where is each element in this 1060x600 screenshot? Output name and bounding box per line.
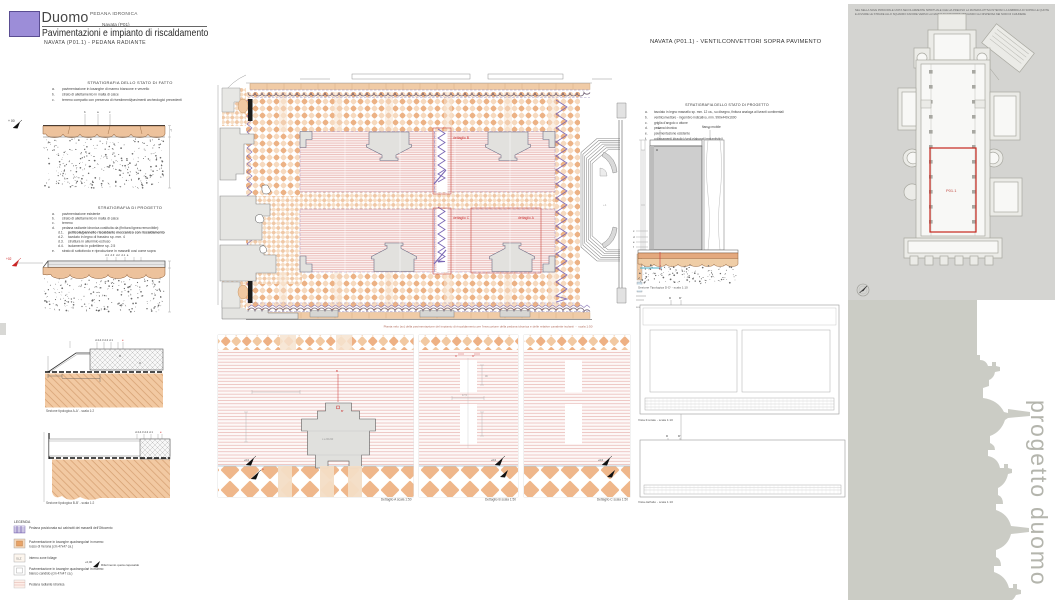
svg-text:c.: c.	[645, 121, 648, 125]
svg-text:d: d	[633, 235, 635, 239]
svg-text:Pedana radiante idronica: Pedana radiante idronica	[29, 583, 65, 587]
svg-text:e.: e.	[645, 132, 648, 136]
svg-text:pavimentazione in losanghe di: pavimentazione in losanghe di marmo bian…	[62, 87, 149, 91]
svg-text:A: A	[262, 467, 264, 471]
svg-text:b.: b.	[645, 115, 648, 119]
svg-text:d.: d.	[52, 226, 55, 230]
svg-text:47,5: 47,5	[462, 394, 467, 397]
svg-text:c.: c.	[52, 98, 55, 102]
svg-text:Pianta velo (sx) della pavimen: Pianta velo (sx) della pavimentazione de…	[384, 325, 593, 329]
svg-text:d.4 d.3 d.2 d.1: d.4 d.3 d.2 d.1	[95, 338, 114, 342]
svg-text:griglia d'angolo o ottone: griglia d'angolo o ottone	[654, 121, 688, 125]
svg-text:P01.1: P01.1	[946, 188, 957, 193]
svg-text:D: D	[669, 296, 672, 300]
svg-text:pavimentazione esistente: pavimentazione esistente	[62, 212, 100, 216]
svg-text:Pedana posizionata sui cabinot: Pedana posizionata sui cabinotti dei mas…	[29, 526, 113, 530]
svg-text:b: b	[84, 110, 86, 114]
svg-text:terreno compatto con presenza: terreno compatto con presenza di rivesti…	[62, 98, 182, 102]
svg-text:fianco mobile: fianco mobile	[702, 125, 721, 129]
svg-text:f.: f.	[645, 137, 647, 141]
svg-text:bianco candido (cm 47x47 ca.): bianco candido (cm 47x47 ca.)	[29, 572, 72, 576]
svg-text:B: B	[336, 369, 338, 373]
svg-text:+ 00: + 00	[8, 119, 15, 123]
svg-text:Dettaglio B scala 1:50: Dettaglio B scala 1:50	[485, 498, 516, 502]
svg-text:c: c	[109, 110, 111, 114]
svg-text:d.3.: d.3.	[58, 240, 64, 244]
svg-text:b.: b.	[52, 217, 55, 221]
svg-text:Pavimentazione in losanghe qua: Pavimentazione in losanghe quadrangolari…	[29, 540, 104, 544]
svg-text:tavolato in legno di frassino: tavolato in legno di frassino sp. mm. 4	[68, 235, 125, 239]
svg-text:d.4 d.3 d.2 d.1: d.4 d.3 d.2 d.1	[135, 430, 154, 434]
svg-text:+0,0: +0,0	[598, 458, 604, 462]
svg-text:D: D	[666, 434, 669, 438]
svg-text:a.: a.	[645, 110, 648, 114]
svg-text:d.2.: d.2.	[58, 235, 64, 239]
svg-text:+02: +02	[6, 257, 12, 261]
svg-text:Riferimento quota caposaldo: Riferimento quota caposaldo	[101, 563, 140, 567]
svg-text:a: a	[97, 110, 99, 114]
svg-text:Sezione Tipologica D-D' - scal: Sezione Tipologica D-D' - scala 1:10	[638, 286, 688, 290]
svg-text:SLZ: SLZ	[16, 557, 22, 561]
svg-text:Sezione tipologica B-B' - scal: Sezione tipologica B-B' - scala 1:2	[46, 501, 94, 505]
svg-text:+0,0: +0,0	[491, 458, 497, 462]
svg-text:rosso di Verona (cm 47x47 ca.): rosso di Verona (cm 47x47 ca.)	[29, 545, 73, 549]
svg-text:+0,00: +0,00	[85, 560, 93, 564]
svg-text:dettaglio B: dettaglio B	[453, 136, 470, 140]
svg-text:isolamento in polietilene sp.: isolamento in polietilene sp. 2.5	[68, 244, 115, 248]
svg-text:c: c	[633, 229, 635, 233]
svg-text:Dettaglio A scala 1:50: Dettaglio A scala 1:50	[381, 498, 412, 502]
svg-text:d.4.: d.4.	[58, 244, 64, 248]
svg-text:ventilconvettore - ingombro in: ventilconvettore - ingombro indicativo, …	[654, 115, 737, 119]
svg-text:struttura in alluminio estruso: struttura in alluminio estruso	[68, 240, 111, 244]
svg-text:dettaglio A: dettaglio A	[518, 216, 535, 220]
svg-text:c.: c.	[52, 221, 55, 225]
svg-text:e.: e.	[52, 249, 55, 253]
svg-text:LEGENDA: LEGENDA	[14, 520, 31, 524]
svg-text:Pavimentazione in losanghe qua: Pavimentazione in losanghe quadrangolari…	[29, 567, 104, 571]
svg-text:d.: d.	[645, 126, 648, 130]
svg-text:a.: a.	[52, 212, 55, 216]
svg-text:interno zone foliage: interno zone foliage	[29, 556, 57, 560]
svg-text:e: e	[160, 430, 162, 434]
svg-text:terreno: terreno	[62, 221, 73, 225]
svg-text:d.4 d.3 d.2 d.1 a: d.4 d.3 d.2 d.1 a	[105, 253, 129, 257]
svg-text:Sezione tipologica A-A' - scal: Sezione tipologica A-A' - scala 1:2	[46, 409, 94, 413]
svg-text:a.: a.	[52, 87, 55, 91]
svg-text:strato di allettamento in malt: strato di allettamento in malta di calce	[62, 93, 119, 97]
svg-text:dettaglio C: dettaglio C	[453, 216, 470, 220]
svg-text:b.: b.	[52, 93, 55, 97]
svg-text:pedana radiante idronica costi: pedana radiante idronica costituita da (…	[62, 226, 159, 230]
svg-text:STRATIGRAFIA DI PROGETTO: STRATIGRAFIA DI PROGETTO	[98, 205, 162, 210]
svg-text:STRATIGRAFIA DELLO STATO DI PR: STRATIGRAFIA DELLO STATO DI PROGETTO	[685, 103, 769, 107]
svg-text:Dettaglio C scala 1:50: Dettaglio C scala 1:50	[597, 498, 628, 502]
svg-text:Vista frontale - scala 1:10: Vista frontale - scala 1:10	[638, 418, 673, 422]
svg-text:c.a 90x90: c.a 90x90	[322, 437, 334, 441]
svg-text:Vista dall'alto - scala 1:10: Vista dall'alto - scala 1:10	[638, 500, 673, 504]
svg-text:e: e	[122, 338, 124, 342]
svg-text:d.1.: d.1.	[58, 230, 64, 234]
svg-text:B': B'	[341, 409, 344, 413]
svg-text:pellicola/pannello riscaldante: pellicola/pannello riscaldante meccanico…	[68, 230, 165, 234]
svg-text:C': C'	[472, 354, 475, 358]
svg-text:f: f	[633, 245, 634, 249]
svg-text:D': D'	[678, 434, 681, 438]
svg-text:strato di allettamento in malt: strato di allettamento in malta di calce	[62, 217, 119, 221]
svg-text:+1: +1	[603, 203, 607, 207]
svg-text:tavolato in legno massello sp.: tavolato in legno massello sp. mm. 12 ca…	[654, 110, 784, 114]
svg-text:pavimentazione esistente: pavimentazione esistente	[654, 132, 690, 136]
svg-text:STRATIGRAFIA DELLO STATO DI FA: STRATIGRAFIA DELLO STATO DI FATTO	[87, 80, 172, 85]
svg-text:D': D'	[679, 296, 682, 300]
svg-text:e: e	[633, 240, 635, 244]
svg-text:+0,0: +0,0	[244, 458, 250, 462]
